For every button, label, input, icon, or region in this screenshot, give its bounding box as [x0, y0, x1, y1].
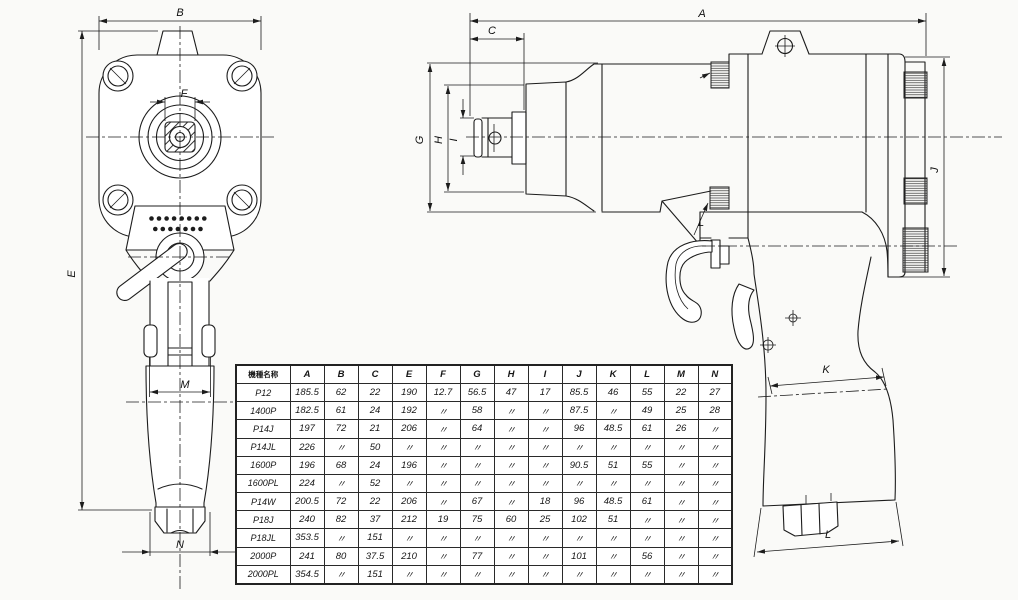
spec-value-cell: 〃 — [460, 529, 494, 547]
spec-value-cell: 56.5 — [460, 384, 494, 402]
spec-value-cell: 〃 — [494, 547, 528, 565]
spec-value-cell: 〃 — [596, 547, 630, 565]
spec-value-cell: 28 — [698, 402, 732, 420]
spec-value-cell: 48.5 — [596, 420, 630, 438]
dim-label-k: K — [822, 364, 830, 376]
spec-value-cell: 〃 — [562, 529, 596, 547]
dim-label-l: L — [825, 529, 831, 541]
spec-value-cell: 〃 — [426, 565, 460, 584]
spec-value-cell: 〃 — [426, 420, 460, 438]
spec-header-model: 機種名称 — [236, 365, 290, 384]
spec-value-cell: 〃 — [460, 456, 494, 474]
knurled-screw-icon — [711, 62, 729, 88]
spec-value-cell: 〃 — [698, 456, 732, 474]
spec-value-cell: 62 — [324, 384, 358, 402]
spec-value-cell: 〃 — [460, 474, 494, 492]
spec-value-cell: 17 — [528, 384, 562, 402]
spec-value-cell: 〃 — [528, 438, 562, 456]
spec-model-cell: 1400P — [236, 402, 290, 420]
spec-value-cell: 26 — [664, 420, 698, 438]
spec-value-cell: 〃 — [460, 565, 494, 584]
table-row: 1600PL224〃52〃〃〃〃〃〃〃〃〃〃 — [236, 474, 732, 492]
spec-value-cell: 〃 — [698, 565, 732, 584]
spec-value-cell: 182.5 — [290, 402, 324, 420]
trigger-icon — [732, 284, 754, 349]
spec-value-cell: 〃 — [698, 511, 732, 529]
spec-value-cell: 〃 — [596, 565, 630, 584]
spec-value-cell: 197 — [290, 420, 324, 438]
spec-header-cell: E — [392, 365, 426, 384]
spec-value-cell: 55 — [630, 456, 664, 474]
spec-value-cell: 25 — [528, 511, 562, 529]
spec-value-cell: 〃 — [528, 529, 562, 547]
spec-value-cell: 〃 — [596, 402, 630, 420]
spec-value-cell: 〃 — [698, 529, 732, 547]
spec-value-cell: 〃 — [494, 420, 528, 438]
spec-value-cell: 37.5 — [358, 547, 392, 565]
spec-value-cell: 〃 — [698, 493, 732, 511]
table-row: 2000P2418037.5210〃77〃〃101〃56〃〃 — [236, 547, 732, 565]
spec-value-cell: 24 — [358, 402, 392, 420]
spec-value-cell: 210 — [392, 547, 426, 565]
spec-model-cell: 2000PL — [236, 565, 290, 584]
spec-value-cell: 85.5 — [562, 384, 596, 402]
dim-A: A — [470, 8, 926, 116]
spec-value-cell: 〃 — [528, 402, 562, 420]
spec-value-cell: 87.5 — [562, 402, 596, 420]
spec-value-cell: 〃 — [324, 438, 358, 456]
spec-value-cell: 〃 — [426, 529, 460, 547]
spec-value-cell: 47 — [494, 384, 528, 402]
spec-value-cell: 49 — [630, 402, 664, 420]
spec-value-cell: 192 — [392, 402, 426, 420]
spec-value-cell: 37 — [358, 511, 392, 529]
spec-header-cell: C — [358, 365, 392, 384]
rear-cap-outline — [888, 54, 928, 277]
spec-value-cell: 61 — [630, 493, 664, 511]
spec-header-cell: K — [596, 365, 630, 384]
spec-value-cell: 〃 — [528, 565, 562, 584]
hanger-bracket-icon — [762, 31, 809, 57]
spec-value-cell: 〃 — [596, 438, 630, 456]
spec-value-cell: 151 — [358, 529, 392, 547]
spec-value-cell: 〃 — [324, 565, 358, 584]
spec-value-cell: 72 — [324, 493, 358, 511]
spec-value-cell: 〃 — [494, 456, 528, 474]
spec-model-cell: P18J — [236, 511, 290, 529]
reverse-valve-knob-icon — [710, 187, 729, 209]
spec-value-cell: 80 — [324, 547, 358, 565]
spec-value-cell: 〃 — [426, 493, 460, 511]
spec-value-cell: 〃 — [664, 493, 698, 511]
spec-value-cell: 〃 — [528, 456, 562, 474]
spec-value-cell: 55 — [630, 384, 664, 402]
spec-value-cell: 〃 — [562, 565, 596, 584]
spec-value-cell: 〃 — [392, 529, 426, 547]
dim-label-e: E — [66, 270, 78, 278]
spec-model-cell: 1600PL — [236, 474, 290, 492]
spec-value-cell: 200.5 — [290, 493, 324, 511]
dim-label-m: M — [180, 379, 190, 391]
spec-value-cell: 206 — [392, 493, 426, 511]
spec-value-cell: 46 — [596, 384, 630, 402]
spec-value-cell: 206 — [392, 420, 426, 438]
spec-header-cell: B — [324, 365, 358, 384]
spec-value-cell: 〃 — [630, 511, 664, 529]
dim-label-a: A — [697, 8, 705, 20]
spec-value-cell: 〃 — [698, 438, 732, 456]
spec-value-cell: 〃 — [494, 529, 528, 547]
spec-value-cell: 240 — [290, 511, 324, 529]
spec-value-cell: 241 — [290, 547, 324, 565]
spec-header-cell: F — [426, 365, 460, 384]
spec-value-cell: 〃 — [528, 420, 562, 438]
spec-value-cell: 50 — [358, 438, 392, 456]
spec-value-cell: 〃 — [426, 474, 460, 492]
spec-value-cell: 61 — [630, 420, 664, 438]
spec-value-cell: 〃 — [630, 438, 664, 456]
spec-value-cell: 48.5 — [596, 493, 630, 511]
table-row: 1600P1966824196〃〃〃〃90.55155〃〃 — [236, 456, 732, 474]
spec-value-cell: 〃 — [664, 474, 698, 492]
spec-header-cell: H — [494, 365, 528, 384]
spec-model-cell: P18JL — [236, 529, 290, 547]
spec-value-cell: 196 — [392, 456, 426, 474]
spec-value-cell: 〃 — [494, 493, 528, 511]
spec-header-row: 機種名称ABCEFGHIJKLMN — [236, 365, 732, 384]
table-row: P18JL353.5〃151〃〃〃〃〃〃〃〃〃〃 — [236, 529, 732, 547]
dim-label-h: H — [433, 136, 445, 144]
spec-table-container: 機種名称ABCEFGHIJKLMN P12185.5622219012.756.… — [235, 364, 732, 586]
spec-value-cell: 82 — [324, 511, 358, 529]
spec-value-cell: 18 — [528, 493, 562, 511]
spec-value-cell: 72 — [324, 420, 358, 438]
table-row: P14W200.57222206〃67〃189648.561〃〃 — [236, 493, 732, 511]
spec-header-cell: J — [562, 365, 596, 384]
spec-value-cell: 67 — [460, 493, 494, 511]
spec-value-cell: 〃 — [698, 420, 732, 438]
spec-value-cell: 354.5 — [290, 565, 324, 584]
spec-value-cell: 〃 — [562, 474, 596, 492]
spec-value-cell: 56 — [630, 547, 664, 565]
spec-value-cell: 〃 — [324, 474, 358, 492]
spec-value-cell: 24 — [358, 456, 392, 474]
spec-value-cell: 〃 — [494, 565, 528, 584]
spec-value-cell: 〃 — [494, 438, 528, 456]
spec-value-cell: 64 — [460, 420, 494, 438]
spec-header-cell: G — [460, 365, 494, 384]
dim-label-g: G — [414, 135, 426, 144]
spec-value-cell: 〃 — [528, 474, 562, 492]
spec-value-cell: 96 — [562, 493, 596, 511]
dim-label-i: I — [448, 138, 460, 141]
spec-value-cell: 〃 — [596, 529, 630, 547]
table-row: P12185.5622219012.756.5471785.546552227 — [236, 384, 732, 402]
spec-value-cell: 〃 — [630, 529, 664, 547]
anvil-icon — [474, 112, 526, 164]
spec-value-cell: 22 — [358, 384, 392, 402]
spec-value-cell: 〃 — [324, 529, 358, 547]
spec-value-cell: 〃 — [528, 547, 562, 565]
spec-value-cell: 〃 — [392, 438, 426, 456]
spec-value-cell: 〃 — [664, 529, 698, 547]
dim-label-l-flag: L — [698, 217, 704, 229]
reverse-lever-icon — [666, 241, 712, 323]
spec-value-cell: 151 — [358, 565, 392, 584]
spec-value-cell: 224 — [290, 474, 324, 492]
spec-value-cell: 〃 — [460, 438, 494, 456]
spec-value-cell: 〃 — [630, 474, 664, 492]
spec-value-cell: 96 — [562, 420, 596, 438]
spec-value-cell: 102 — [562, 511, 596, 529]
spec-value-cell: 〃 — [426, 456, 460, 474]
table-row: P18J24082372121975602510251〃〃〃 — [236, 511, 732, 529]
spec-model-cell: 2000P — [236, 547, 290, 565]
spec-value-cell: 〃 — [664, 511, 698, 529]
spec-value-cell: 12.7 — [426, 384, 460, 402]
dim-C: C — [470, 25, 524, 110]
spec-value-cell: 〃 — [426, 402, 460, 420]
spec-value-cell: 22 — [358, 493, 392, 511]
table-row: 1400P182.56124192〃58〃〃87.5〃492528 — [236, 402, 732, 420]
spec-model-cell: P14W — [236, 493, 290, 511]
spec-value-cell: 〃 — [698, 547, 732, 565]
spec-value-cell: 75 — [460, 511, 494, 529]
spec-value-cell: 〃 — [664, 547, 698, 565]
spec-value-cell: 〃 — [426, 438, 460, 456]
table-row: P14J1977221206〃64〃〃9648.56126〃 — [236, 420, 732, 438]
spec-value-cell: 52 — [358, 474, 392, 492]
spec-value-cell: 51 — [596, 456, 630, 474]
spec-model-cell: P14J — [236, 420, 290, 438]
spec-value-cell: 〃 — [494, 474, 528, 492]
spec-value-cell: 〃 — [664, 456, 698, 474]
spec-header-cell: M — [664, 365, 698, 384]
spec-value-cell: 〃 — [392, 474, 426, 492]
dim-label-b: B — [176, 7, 183, 19]
spec-value-cell: 226 — [290, 438, 324, 456]
spec-value-cell: 185.5 — [290, 384, 324, 402]
spec-model-cell: P14JL — [236, 438, 290, 456]
spec-value-cell: 〃 — [664, 438, 698, 456]
spec-value-cell: 22 — [664, 384, 698, 402]
spec-value-cell: 〃 — [698, 474, 732, 492]
table-row: 2000PL354.5〃151〃〃〃〃〃〃〃〃〃〃 — [236, 565, 732, 584]
spec-value-cell: 61 — [324, 402, 358, 420]
spec-value-cell: 25 — [664, 402, 698, 420]
spec-table: 機種名称ABCEFGHIJKLMN P12185.5622219012.756.… — [235, 364, 733, 585]
spec-model-cell: 1600P — [236, 456, 290, 474]
spec-header-cell: L — [630, 365, 664, 384]
spec-header-cell: A — [290, 365, 324, 384]
spec-header-cell: I — [528, 365, 562, 384]
spec-value-cell: 〃 — [630, 565, 664, 584]
spec-value-cell: 〃 — [596, 474, 630, 492]
spec-value-cell: 〃 — [426, 547, 460, 565]
spec-value-cell: 60 — [494, 511, 528, 529]
spec-table-body: P12185.5622219012.756.5471785.5465522271… — [236, 384, 732, 585]
spec-value-cell: 〃 — [562, 438, 596, 456]
spec-value-cell: 353.5 — [290, 529, 324, 547]
spec-value-cell: 101 — [562, 547, 596, 565]
spec-value-cell: 77 — [460, 547, 494, 565]
spec-value-cell: 68 — [324, 456, 358, 474]
dim-label-c: C — [488, 25, 496, 37]
dim-K: K — [768, 364, 886, 394]
spec-value-cell: 〃 — [392, 565, 426, 584]
spec-value-cell: 〃 — [664, 565, 698, 584]
spec-value-cell: 27 — [698, 384, 732, 402]
spec-value-cell: 90.5 — [562, 456, 596, 474]
spec-value-cell: 〃 — [494, 402, 528, 420]
table-row: P14JL226〃50〃〃〃〃〃〃〃〃〃〃 — [236, 438, 732, 456]
dim-label-n: N — [176, 539, 184, 551]
spec-value-cell: 212 — [392, 511, 426, 529]
spec-value-cell: 58 — [460, 402, 494, 420]
spec-header-cell: N — [698, 365, 732, 384]
spec-value-cell: 196 — [290, 456, 324, 474]
spec-value-cell: 51 — [596, 511, 630, 529]
dim-label-j: J — [929, 167, 941, 174]
spec-model-cell: P12 — [236, 384, 290, 402]
spec-value-cell: 190 — [392, 384, 426, 402]
spec-value-cell: 21 — [358, 420, 392, 438]
spec-value-cell: 19 — [426, 511, 460, 529]
